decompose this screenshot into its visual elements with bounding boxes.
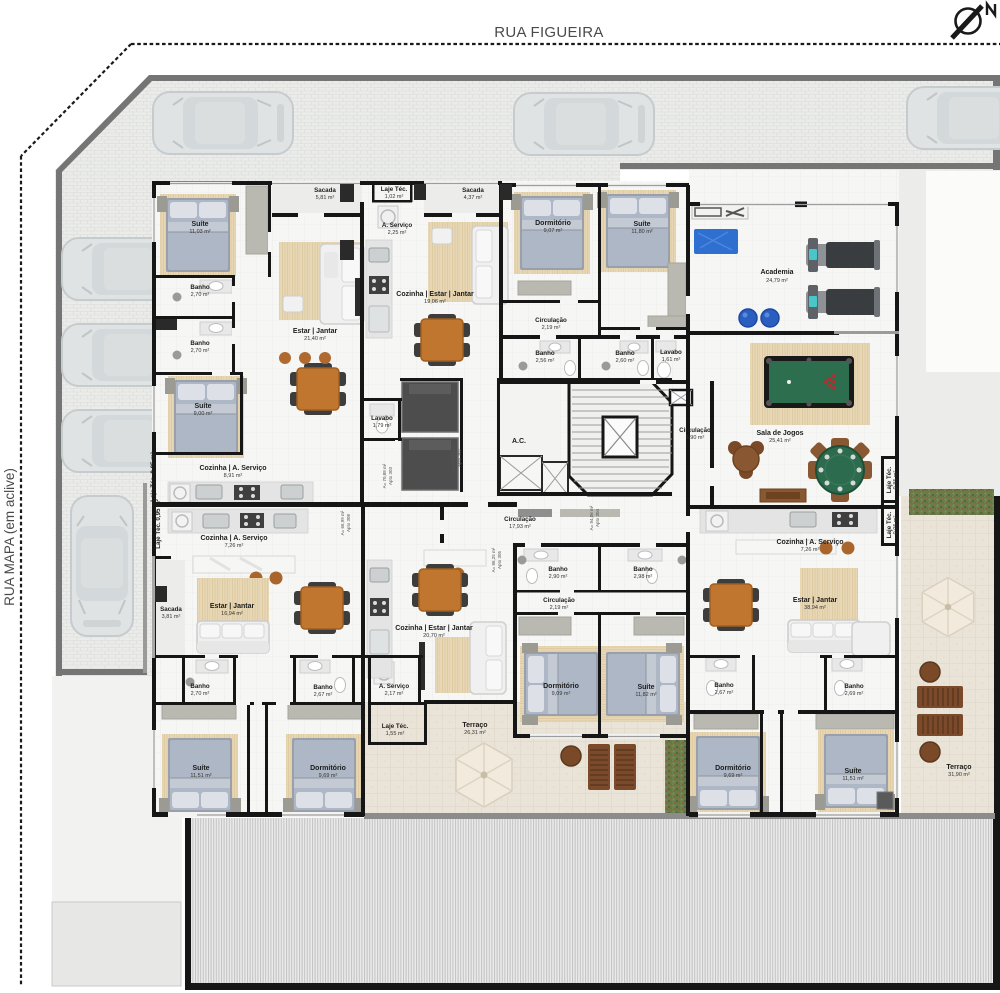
svg-text:2,70 m²: 2,70 m²: [191, 348, 210, 354]
svg-text:19,06 m²: 19,06 m²: [424, 299, 446, 305]
svg-text:A= 70,88 m²: A= 70,88 m²: [382, 463, 387, 488]
svg-text:0,05 m²: 0,05 m²: [893, 516, 899, 535]
svg-text:9,00 m²: 9,00 m²: [194, 411, 213, 417]
svg-text:2,67 m²: 2,67 m²: [314, 692, 333, 698]
svg-text:Laje Téc. 0,95 m²: Laje Téc. 0,95 m²: [155, 499, 162, 549]
svg-text:26,31 m²: 26,31 m²: [464, 730, 486, 736]
svg-text:Dormitório: Dormitório: [535, 220, 571, 227]
svg-text:Apto 304: Apto 304: [595, 508, 600, 527]
svg-text:Lavabo: Lavabo: [660, 349, 682, 356]
svg-text:2,67 m²: 2,67 m²: [715, 690, 734, 696]
svg-text:11,51 m²: 11,51 m²: [842, 776, 863, 782]
svg-text:Sala de Jogos: Sala de Jogos: [756, 430, 803, 437]
svg-text:Circulação: Circulação: [504, 516, 536, 523]
svg-text:1,55 m²: 1,55 m²: [386, 731, 405, 737]
svg-text:Circulação: Circulação: [543, 597, 575, 604]
svg-text:2,70 m²: 2,70 m²: [191, 292, 210, 298]
svg-text:2,70 m²: 2,70 m²: [191, 691, 210, 697]
svg-text:Dormitório: Dormitório: [310, 765, 346, 772]
svg-text:Banho: Banho: [548, 566, 567, 573]
svg-text:2,25 m²: 2,25 m²: [388, 230, 407, 236]
svg-text:Laje Téc.: Laje Téc.: [886, 511, 893, 538]
svg-text:A. Serviço: A. Serviço: [382, 222, 412, 229]
svg-text:8,91 m²: 8,91 m²: [224, 473, 243, 479]
svg-text:11,03 m²: 11,03 m²: [189, 229, 210, 235]
svg-text:2,19 m²: 2,19 m²: [542, 325, 561, 331]
svg-text:Banho: Banho: [190, 284, 209, 291]
svg-text:Cozinha | A. Serviço: Cozinha | A. Serviço: [776, 539, 843, 546]
svg-text:A. Serviço: A. Serviço: [379, 683, 409, 690]
svg-text:2,19 m²: 2,19 m²: [550, 605, 569, 611]
svg-text:Estar | Jantar: Estar | Jantar: [210, 603, 255, 610]
svg-text:Apto 305: Apto 305: [497, 550, 502, 569]
svg-text:A= 62,07 m²: A= 62,07 m²: [451, 445, 456, 470]
svg-text:1,79 m²: 1,79 m²: [373, 423, 392, 429]
svg-text:Suíte: Suíte: [194, 403, 211, 410]
svg-text:Laje Téc. 0,05 m²: Laje Téc. 0,05 m²: [150, 452, 157, 502]
svg-text:Estar | Jantar: Estar | Jantar: [793, 597, 838, 604]
svg-text:A= 86,25 m²: A= 86,25 m²: [491, 547, 496, 572]
svg-text:4,37 m²: 4,37 m²: [464, 195, 483, 201]
svg-text:A= 94,06 m²: A= 94,06 m²: [589, 505, 594, 530]
svg-text:Banho: Banho: [535, 350, 554, 357]
svg-text:0,85 m²: 0,85 m²: [893, 471, 899, 490]
svg-text:Laje Téc.: Laje Téc.: [381, 186, 408, 193]
svg-text:2,90 m²: 2,90 m²: [549, 574, 568, 580]
svg-text:9,69 m²: 9,69 m²: [319, 773, 338, 779]
svg-text:Cozinha | A. Serviço: Cozinha | A. Serviço: [199, 465, 266, 472]
svg-text:38,94 m²: 38,94 m²: [804, 605, 826, 611]
svg-text:Suíte: Suíte: [844, 768, 861, 775]
svg-text:21,40 m²: 21,40 m²: [304, 336, 326, 342]
svg-text:Apto 302: Apto 302: [457, 448, 462, 467]
svg-text:Circulação: Circulação: [679, 427, 711, 434]
svg-text:9,69 m²: 9,69 m²: [724, 773, 743, 779]
svg-text:Cozinha | Estar | Jantar: Cozinha | Estar | Jantar: [395, 625, 473, 632]
svg-text:Banho: Banho: [313, 684, 332, 691]
svg-text:Dormitório: Dormitório: [543, 683, 579, 690]
svg-text:Banho: Banho: [190, 683, 209, 690]
svg-text:Banho: Banho: [844, 683, 863, 690]
svg-text:Sacada: Sacada: [314, 187, 336, 194]
svg-text:3,81 m²: 3,81 m²: [162, 614, 181, 620]
svg-text:20,70 m²: 20,70 m²: [423, 633, 445, 639]
svg-text:Banho: Banho: [633, 566, 652, 573]
svg-text:11,80 m²: 11,80 m²: [631, 229, 652, 235]
svg-text:2,56 m²: 2,56 m²: [536, 358, 555, 364]
svg-text:7,26 m²: 7,26 m²: [801, 547, 820, 553]
svg-text:Circulação: Circulação: [535, 317, 567, 324]
svg-text:Laje Téc.: Laje Téc.: [886, 466, 893, 493]
svg-text:RUA MAPA (em aclive): RUA MAPA (em aclive): [2, 468, 17, 606]
svg-text:1,02 m²: 1,02 m²: [385, 194, 404, 200]
svg-text:Suíte: Suíte: [191, 221, 208, 228]
svg-text:9,09 m²: 9,09 m²: [552, 691, 571, 697]
svg-text:A.C.: A.C.: [512, 438, 526, 445]
svg-text:Terraço: Terraço: [462, 722, 487, 729]
svg-text:7,26 m²: 7,26 m²: [225, 543, 244, 549]
svg-text:Sacada: Sacada: [462, 187, 484, 194]
svg-text:Suíte: Suíte: [633, 221, 650, 228]
svg-text:Dormitório: Dormitório: [715, 765, 751, 772]
svg-text:Estar | Jantar: Estar | Jantar: [293, 328, 338, 335]
svg-text:Laje Téc.: Laje Téc.: [382, 723, 409, 730]
svg-text:11,82 m²: 11,82 m²: [635, 692, 656, 698]
svg-text:Banho: Banho: [615, 350, 634, 357]
svg-text:2,17 m²: 2,17 m²: [385, 691, 404, 697]
svg-text:Academia: Academia: [760, 269, 793, 276]
svg-text:5,81 m²: 5,81 m²: [316, 195, 335, 201]
svg-text:31,90 m²: 31,90 m²: [948, 772, 970, 778]
svg-text:16,94 m²: 16,94 m²: [221, 611, 243, 617]
svg-text:17,93 m²: 17,93 m²: [509, 524, 531, 530]
svg-text:6,90 m²: 6,90 m²: [686, 435, 705, 441]
svg-text:RUA FIGUEIRA: RUA FIGUEIRA: [494, 24, 603, 41]
svg-text:9,07 m²: 9,07 m²: [544, 228, 563, 234]
svg-text:24,79 m²: 24,79 m²: [766, 278, 788, 284]
svg-text:Sacada: Sacada: [160, 606, 182, 613]
svg-text:Cozinha | A. Serviço: Cozinha | A. Serviço: [200, 535, 267, 542]
svg-text:Suíte: Suíte: [637, 684, 654, 691]
svg-text:Cozinha | Estar | Jantar: Cozinha | Estar | Jantar: [396, 291, 474, 298]
svg-text:Banho: Banho: [190, 340, 209, 347]
svg-text:Lavabo: Lavabo: [371, 415, 393, 422]
svg-text:A= 66,99 m²: A= 66,99 m²: [340, 510, 345, 535]
svg-text:Apto 303: Apto 303: [388, 466, 393, 485]
svg-text:Apto 308: Apto 308: [346, 513, 351, 532]
svg-text:11,51 m²: 11,51 m²: [190, 773, 211, 779]
svg-text:Suíte: Suíte: [192, 765, 209, 772]
svg-text:Terraço: Terraço: [946, 764, 971, 771]
svg-text:2,69 m²: 2,69 m²: [845, 691, 864, 697]
svg-text:25,41 m²: 25,41 m²: [769, 438, 791, 444]
svg-text:2,98 m²: 2,98 m²: [634, 574, 653, 580]
svg-text:1,61 m²: 1,61 m²: [662, 357, 681, 363]
svg-text:Banho: Banho: [714, 682, 733, 689]
svg-text:2,60 m²: 2,60 m²: [616, 358, 635, 364]
